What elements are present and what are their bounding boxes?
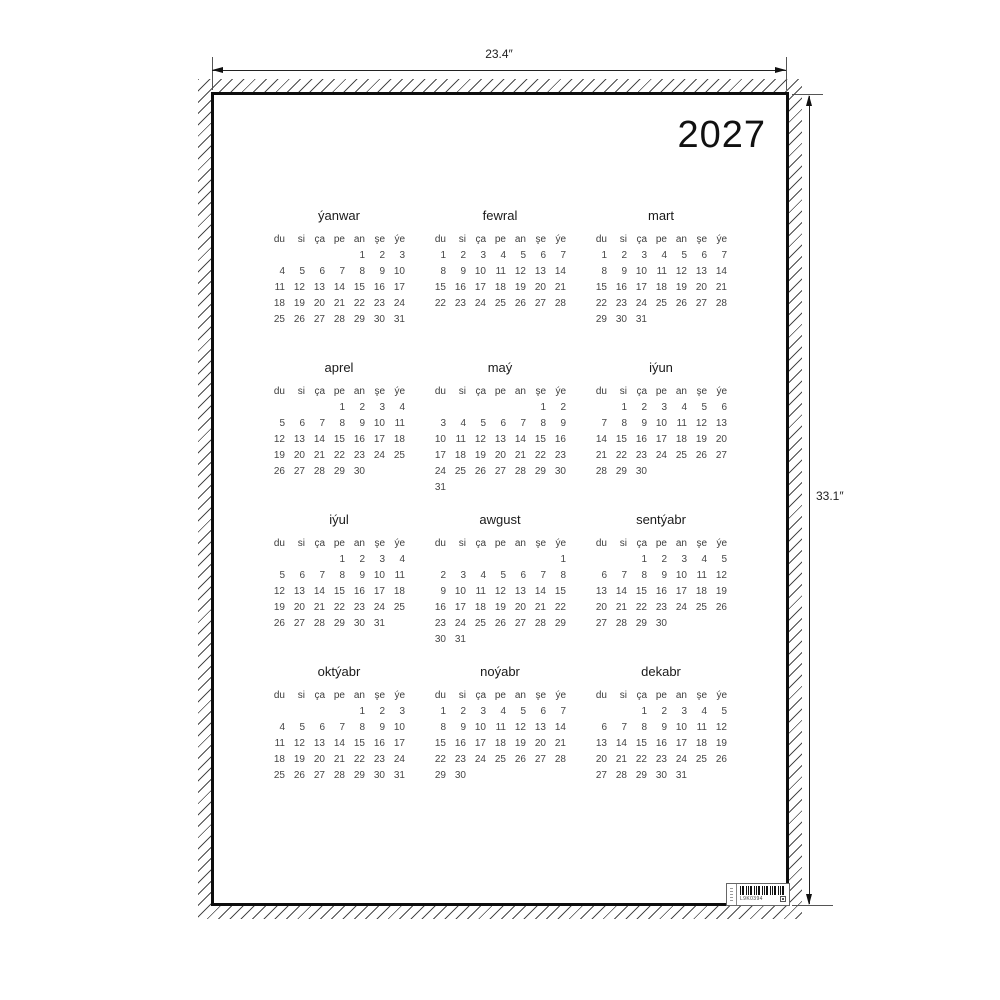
day-header-cell: ça <box>470 688 490 704</box>
day-cell: 26 <box>490 616 510 632</box>
day-cell: 12 <box>711 720 731 736</box>
day-cell: 11 <box>691 720 711 736</box>
day-cell: 18 <box>389 584 409 600</box>
day-cell: 21 <box>550 280 570 296</box>
day-header-cell: an <box>671 536 691 552</box>
day-cell: 14 <box>611 584 631 600</box>
day-cell: 20 <box>490 448 510 464</box>
day-cell: 30 <box>430 632 450 648</box>
day-cell: 13 <box>309 280 329 296</box>
day-cell: 5 <box>671 248 691 264</box>
day-cell: 15 <box>550 584 570 600</box>
day-cell: 12 <box>510 720 530 736</box>
day-cell: 23 <box>349 448 369 464</box>
day-cell: 29 <box>530 464 550 480</box>
day-cell: 2 <box>631 400 651 416</box>
barcode-sticker: L9K0394 <box>726 883 790 906</box>
day-cell: 29 <box>329 616 349 632</box>
day-cell: 3 <box>389 704 409 720</box>
day-cell: 14 <box>309 432 329 448</box>
day-cell: 11 <box>490 720 510 736</box>
day-header-cell: si <box>611 384 631 400</box>
height-dimension-line <box>809 96 810 904</box>
day-cell: 22 <box>349 752 369 768</box>
day-cell: 10 <box>671 720 691 736</box>
day-cell: 10 <box>470 264 490 280</box>
month-block: aprel dusiçapeanşeýe12345678910111213141… <box>269 361 409 513</box>
month-block: awgust dusiçapeanşeýe1234567891011121314… <box>430 513 570 665</box>
day-cell: 18 <box>671 432 691 448</box>
day-header-cell: du <box>269 384 289 400</box>
day-cell: 17 <box>389 736 409 752</box>
day-cell: 14 <box>329 736 349 752</box>
day-cell: 11 <box>651 264 671 280</box>
day-cell: 5 <box>510 248 530 264</box>
day-header-cell: si <box>450 232 470 248</box>
day-cell: 9 <box>430 584 450 600</box>
day-cell: 12 <box>691 416 711 432</box>
day-cell: 21 <box>329 752 349 768</box>
month-title: noýabr <box>430 665 570 679</box>
day-cell: 30 <box>550 464 570 480</box>
month-title: iýul <box>269 513 409 527</box>
day-cell: 28 <box>611 768 631 784</box>
day-cell: 4 <box>671 400 691 416</box>
day-cell-empty <box>450 400 470 416</box>
month-day-grid: dusiçapeanşeýe12345678910111213141516171… <box>430 536 570 648</box>
day-header-cell: pe <box>651 384 671 400</box>
day-cell: 10 <box>631 264 651 280</box>
day-cell: 17 <box>389 280 409 296</box>
day-cell-empty <box>430 400 450 416</box>
day-cell: 25 <box>269 312 289 328</box>
day-cell: 7 <box>550 704 570 720</box>
day-cell: 30 <box>651 616 671 632</box>
day-cell: 12 <box>711 568 731 584</box>
day-header-cell: ýe <box>550 384 570 400</box>
day-cell: 2 <box>450 704 470 720</box>
day-cell: 2 <box>369 248 389 264</box>
day-cell-empty <box>470 400 490 416</box>
day-cell: 22 <box>591 296 611 312</box>
month-day-grid: dusiçapeanşeýe12345678910111213141516171… <box>591 384 731 480</box>
day-cell: 21 <box>711 280 731 296</box>
day-cell: 20 <box>691 280 711 296</box>
day-cell: 10 <box>389 264 409 280</box>
day-cell: 2 <box>349 552 369 568</box>
day-cell: 12 <box>269 432 289 448</box>
day-cell: 22 <box>329 600 349 616</box>
day-cell: 6 <box>711 400 731 416</box>
day-cell: 28 <box>591 464 611 480</box>
day-cell: 28 <box>510 464 530 480</box>
day-cell: 24 <box>450 616 470 632</box>
day-header-cell: pe <box>490 384 510 400</box>
day-cell: 1 <box>349 248 369 264</box>
day-header-cell: ça <box>631 536 651 552</box>
day-cell: 26 <box>711 600 731 616</box>
day-cell: 16 <box>550 432 570 448</box>
day-cell: 3 <box>671 552 691 568</box>
day-cell: 7 <box>329 264 349 280</box>
day-cell: 13 <box>530 264 550 280</box>
day-cell: 21 <box>530 600 550 616</box>
day-cell: 8 <box>430 264 450 280</box>
day-header-cell: du <box>430 536 450 552</box>
day-cell: 23 <box>611 296 631 312</box>
day-cell: 2 <box>651 552 671 568</box>
month-block: ýanwar dusiçapeanşeýe1234567891011121314… <box>269 209 409 361</box>
day-cell: 12 <box>490 584 510 600</box>
day-cell: 17 <box>671 736 691 752</box>
day-header-cell: an <box>671 688 691 704</box>
day-cell: 23 <box>651 600 671 616</box>
day-cell-empty <box>329 704 349 720</box>
day-header-cell: du <box>430 384 450 400</box>
month-day-grid: dusiçapeanşeýe12345678910111213141516171… <box>269 232 409 328</box>
mockup-canvas: 23.4″ 33.1″ 2027 ýanwar dusiçapeanşeýe12… <box>0 0 1000 1000</box>
day-cell: 31 <box>430 480 450 496</box>
day-cell: 19 <box>289 752 309 768</box>
day-cell: 26 <box>269 616 289 632</box>
day-header-cell: pe <box>329 536 349 552</box>
day-cell: 28 <box>309 464 329 480</box>
day-cell-empty <box>289 248 309 264</box>
certification-mark-icon <box>780 896 786 902</box>
month-block: fewral dusiçapeanşeýe1234567891011121314… <box>430 209 570 361</box>
day-cell: 13 <box>490 432 510 448</box>
day-cell: 27 <box>309 312 329 328</box>
day-cell: 5 <box>490 568 510 584</box>
barcode-icon <box>740 886 786 895</box>
day-header-cell: ýe <box>550 232 570 248</box>
month-block: dekabr dusiçapeanşeýe1234567891011121314… <box>591 665 731 817</box>
day-cell: 22 <box>430 296 450 312</box>
day-cell: 20 <box>591 600 611 616</box>
day-header-cell: si <box>289 688 309 704</box>
day-cell: 6 <box>691 248 711 264</box>
day-cell: 24 <box>369 448 389 464</box>
day-cell: 21 <box>329 296 349 312</box>
day-header-cell: şe <box>530 232 550 248</box>
day-header-cell: du <box>430 688 450 704</box>
day-header-cell: şe <box>369 384 389 400</box>
day-header-cell: ýe <box>389 232 409 248</box>
day-cell: 31 <box>389 768 409 784</box>
day-cell: 30 <box>450 768 470 784</box>
day-cell: 7 <box>309 416 329 432</box>
day-cell: 15 <box>329 432 349 448</box>
day-cell: 22 <box>611 448 631 464</box>
day-cell: 11 <box>389 568 409 584</box>
day-cell: 26 <box>711 752 731 768</box>
day-cell: 20 <box>530 736 550 752</box>
day-cell: 13 <box>510 584 530 600</box>
day-cell: 26 <box>289 768 309 784</box>
day-cell: 17 <box>651 432 671 448</box>
day-cell: 31 <box>389 312 409 328</box>
day-cell: 7 <box>711 248 731 264</box>
day-cell: 20 <box>309 296 329 312</box>
day-cell: 15 <box>430 736 450 752</box>
day-cell: 16 <box>349 584 369 600</box>
day-cell: 10 <box>430 432 450 448</box>
day-header-cell: pe <box>651 536 671 552</box>
day-cell: 15 <box>430 280 450 296</box>
day-cell: 20 <box>289 600 309 616</box>
day-cell-empty <box>430 552 450 568</box>
day-header-cell: si <box>450 536 470 552</box>
day-header-cell: şe <box>691 536 711 552</box>
day-cell: 6 <box>591 568 611 584</box>
day-cell: 7 <box>309 568 329 584</box>
day-cell: 17 <box>470 280 490 296</box>
day-cell: 27 <box>530 752 550 768</box>
day-header-cell: ýe <box>711 536 731 552</box>
day-cell: 20 <box>510 600 530 616</box>
day-cell: 8 <box>611 416 631 432</box>
day-cell: 24 <box>389 296 409 312</box>
day-header-cell: an <box>349 536 369 552</box>
day-cell: 29 <box>430 768 450 784</box>
day-cell-empty <box>611 704 631 720</box>
day-cell: 3 <box>470 248 490 264</box>
day-cell: 28 <box>530 616 550 632</box>
day-cell: 31 <box>671 768 691 784</box>
day-header-cell: du <box>591 688 611 704</box>
month-day-grid: dusiçapeanşeýe12345678910111213141516171… <box>430 232 570 312</box>
day-cell: 30 <box>631 464 651 480</box>
day-cell: 6 <box>591 720 611 736</box>
day-cell: 25 <box>691 752 711 768</box>
day-cell: 18 <box>651 280 671 296</box>
day-header-cell: ça <box>309 536 329 552</box>
day-cell: 27 <box>289 616 309 632</box>
day-cell: 7 <box>530 568 550 584</box>
day-cell-empty <box>309 552 329 568</box>
day-cell: 1 <box>550 552 570 568</box>
day-cell: 24 <box>369 600 389 616</box>
day-header-cell: ýe <box>550 536 570 552</box>
day-cell: 19 <box>510 280 530 296</box>
month-title: iýun <box>591 361 731 375</box>
day-cell: 10 <box>671 568 691 584</box>
months-grid: ýanwar dusiçapeanşeýe1234567891011121314… <box>269 209 731 817</box>
day-header-cell: ça <box>309 232 329 248</box>
day-cell: 13 <box>691 264 711 280</box>
day-cell: 30 <box>651 768 671 784</box>
day-cell: 19 <box>269 600 289 616</box>
day-cell: 11 <box>691 568 711 584</box>
day-cell: 31 <box>631 312 651 328</box>
day-cell: 26 <box>289 312 309 328</box>
day-cell: 6 <box>289 416 309 432</box>
month-day-grid: dusiçapeanşeýe12345678910111213141516171… <box>430 384 570 496</box>
day-header-cell: si <box>611 688 631 704</box>
day-cell: 16 <box>611 280 631 296</box>
day-header-cell: ça <box>309 384 329 400</box>
day-header-cell: si <box>289 384 309 400</box>
day-cell-empty <box>490 400 510 416</box>
day-header-cell: pe <box>329 232 349 248</box>
day-cell: 18 <box>490 280 510 296</box>
day-cell-empty <box>510 400 530 416</box>
day-cell: 14 <box>550 264 570 280</box>
month-title: dekabr <box>591 665 731 679</box>
day-header-cell: ça <box>631 688 651 704</box>
day-cell: 9 <box>651 568 671 584</box>
day-cell: 3 <box>430 416 450 432</box>
day-cell: 3 <box>369 400 389 416</box>
day-cell: 22 <box>550 600 570 616</box>
day-cell: 8 <box>631 720 651 736</box>
day-cell: 4 <box>389 400 409 416</box>
day-header-cell: si <box>450 688 470 704</box>
day-cell: 10 <box>369 416 389 432</box>
day-cell: 13 <box>289 432 309 448</box>
day-cell: 27 <box>711 448 731 464</box>
day-cell: 9 <box>450 264 470 280</box>
day-cell: 16 <box>369 736 389 752</box>
day-cell: 7 <box>329 720 349 736</box>
day-cell: 2 <box>651 704 671 720</box>
day-header-cell: pe <box>329 384 349 400</box>
day-cell: 19 <box>510 736 530 752</box>
day-cell: 27 <box>591 616 611 632</box>
day-cell-empty <box>269 400 289 416</box>
arrow-down-icon <box>806 894 812 905</box>
day-cell: 24 <box>671 752 691 768</box>
day-cell: 8 <box>631 568 651 584</box>
day-cell: 21 <box>591 448 611 464</box>
day-cell: 6 <box>309 720 329 736</box>
day-header-cell: pe <box>651 232 671 248</box>
day-cell: 21 <box>550 736 570 752</box>
day-cell: 30 <box>369 312 389 328</box>
day-cell: 29 <box>349 768 369 784</box>
month-title: sentýabr <box>591 513 731 527</box>
month-block: mart dusiçapeanşeýe123456789101112131415… <box>591 209 731 361</box>
day-cell: 26 <box>691 448 711 464</box>
day-cell: 8 <box>329 568 349 584</box>
day-header-cell: ýe <box>711 232 731 248</box>
day-cell: 3 <box>631 248 651 264</box>
day-cell: 1 <box>329 400 349 416</box>
year-title: 2027 <box>677 116 766 154</box>
sticker-body: L9K0394 <box>737 884 789 905</box>
day-cell: 19 <box>470 448 490 464</box>
day-cell: 1 <box>349 704 369 720</box>
day-cell: 6 <box>510 568 530 584</box>
day-cell: 12 <box>470 432 490 448</box>
day-header-cell: an <box>671 384 691 400</box>
day-cell: 14 <box>611 736 631 752</box>
month-title: aprel <box>269 361 409 375</box>
day-cell: 7 <box>550 248 570 264</box>
day-header-cell: du <box>591 232 611 248</box>
day-cell: 30 <box>611 312 631 328</box>
month-day-grid: dusiçapeanşeýe12345678910111213141516171… <box>269 688 409 784</box>
day-cell-empty <box>309 704 329 720</box>
day-header-cell: ýe <box>389 536 409 552</box>
month-title: oktýabr <box>269 665 409 679</box>
day-header-cell: şe <box>530 384 550 400</box>
day-cell: 12 <box>289 736 309 752</box>
day-header-cell: ýe <box>389 384 409 400</box>
day-cell: 5 <box>269 416 289 432</box>
day-cell: 17 <box>470 736 490 752</box>
day-cell: 1 <box>591 248 611 264</box>
day-cell: 27 <box>309 768 329 784</box>
day-cell: 13 <box>530 720 550 736</box>
height-dimension-label: 33.1″ <box>816 490 844 502</box>
day-cell: 13 <box>591 736 611 752</box>
day-cell: 24 <box>470 752 490 768</box>
day-cell: 3 <box>369 552 389 568</box>
day-cell: 19 <box>711 584 731 600</box>
day-cell: 13 <box>289 584 309 600</box>
day-cell: 9 <box>349 568 369 584</box>
day-cell: 23 <box>631 448 651 464</box>
day-cell: 11 <box>470 584 490 600</box>
day-cell-empty <box>329 248 349 264</box>
day-cell: 25 <box>269 768 289 784</box>
day-header-cell: du <box>430 232 450 248</box>
day-cell-empty <box>289 552 309 568</box>
day-cell: 9 <box>651 720 671 736</box>
day-header-cell: şe <box>691 688 711 704</box>
day-cell: 28 <box>550 296 570 312</box>
day-cell: 29 <box>591 312 611 328</box>
day-cell: 8 <box>530 416 550 432</box>
day-cell: 4 <box>389 552 409 568</box>
day-cell: 22 <box>530 448 550 464</box>
day-cell: 28 <box>711 296 731 312</box>
day-cell: 6 <box>530 704 550 720</box>
day-cell-empty <box>269 704 289 720</box>
day-cell: 15 <box>349 280 369 296</box>
day-cell: 30 <box>349 464 369 480</box>
day-header-cell: an <box>510 688 530 704</box>
month-day-grid: dusiçapeanşeýe12345678910111213141516171… <box>269 384 409 480</box>
day-cell: 15 <box>349 736 369 752</box>
day-cell: 7 <box>611 720 631 736</box>
day-cell: 3 <box>450 568 470 584</box>
day-cell: 22 <box>430 752 450 768</box>
day-header-cell: du <box>591 384 611 400</box>
day-header-cell: an <box>349 232 369 248</box>
day-cell-empty <box>309 248 329 264</box>
month-title: awgust <box>430 513 570 527</box>
day-header-cell: şe <box>691 232 711 248</box>
day-cell: 8 <box>349 264 369 280</box>
day-header-cell: ça <box>470 232 490 248</box>
day-header-cell: an <box>510 536 530 552</box>
sticker-vertical-text <box>727 884 737 905</box>
day-cell: 16 <box>450 736 470 752</box>
day-cell: 23 <box>349 600 369 616</box>
day-cell: 30 <box>349 616 369 632</box>
day-cell: 11 <box>269 280 289 296</box>
day-cell: 16 <box>651 584 671 600</box>
day-cell: 29 <box>631 768 651 784</box>
day-cell: 3 <box>389 248 409 264</box>
month-block: sentýabr dusiçapeanşeýe12345678910111213… <box>591 513 731 665</box>
day-cell: 31 <box>450 632 470 648</box>
day-cell: 16 <box>450 280 470 296</box>
day-cell-empty <box>490 552 510 568</box>
day-cell: 23 <box>369 752 389 768</box>
